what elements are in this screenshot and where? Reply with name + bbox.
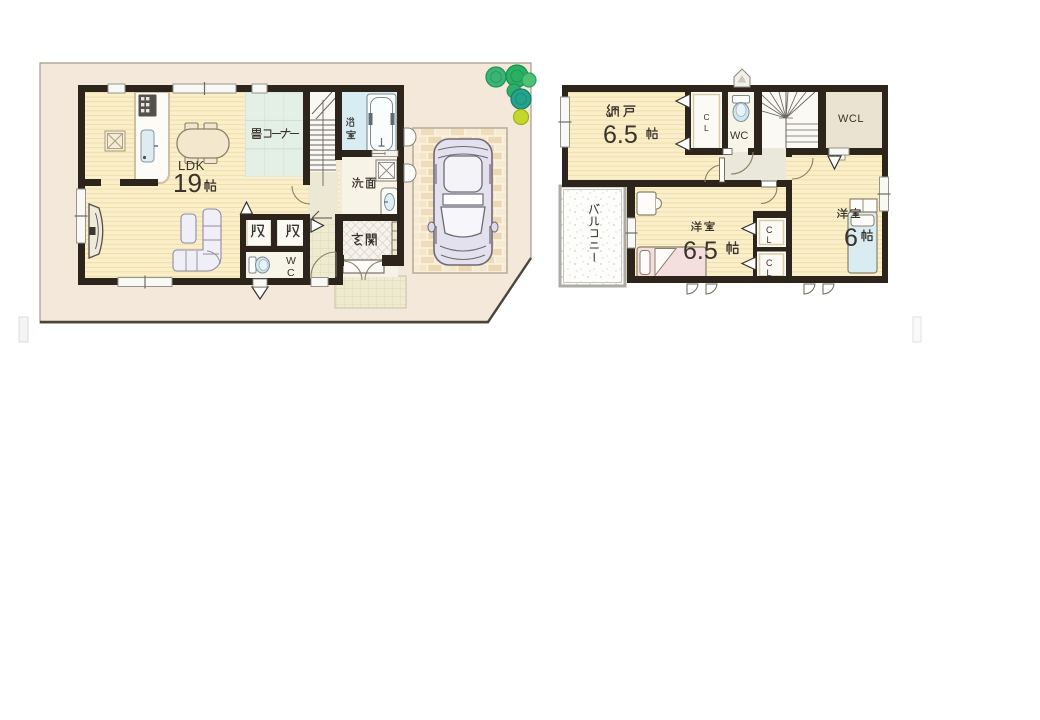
svg-text:19: 19 bbox=[173, 168, 202, 198]
svg-text:WC: WC bbox=[730, 130, 748, 142]
svg-text:W: W bbox=[286, 255, 296, 267]
svg-text:6: 6 bbox=[844, 224, 858, 252]
svg-text:L: L bbox=[767, 268, 772, 278]
svg-text:WCL: WCL bbox=[838, 113, 864, 125]
svg-text:C: C bbox=[766, 225, 773, 235]
svg-text:L: L bbox=[767, 235, 772, 245]
svg-text:C: C bbox=[704, 112, 710, 122]
svg-text:C: C bbox=[766, 258, 773, 268]
svg-text:C: C bbox=[287, 267, 295, 279]
svg-text:6.5: 6.5 bbox=[683, 237, 718, 265]
svg-text:L: L bbox=[704, 123, 709, 133]
svg-text:6.5: 6.5 bbox=[603, 121, 638, 149]
